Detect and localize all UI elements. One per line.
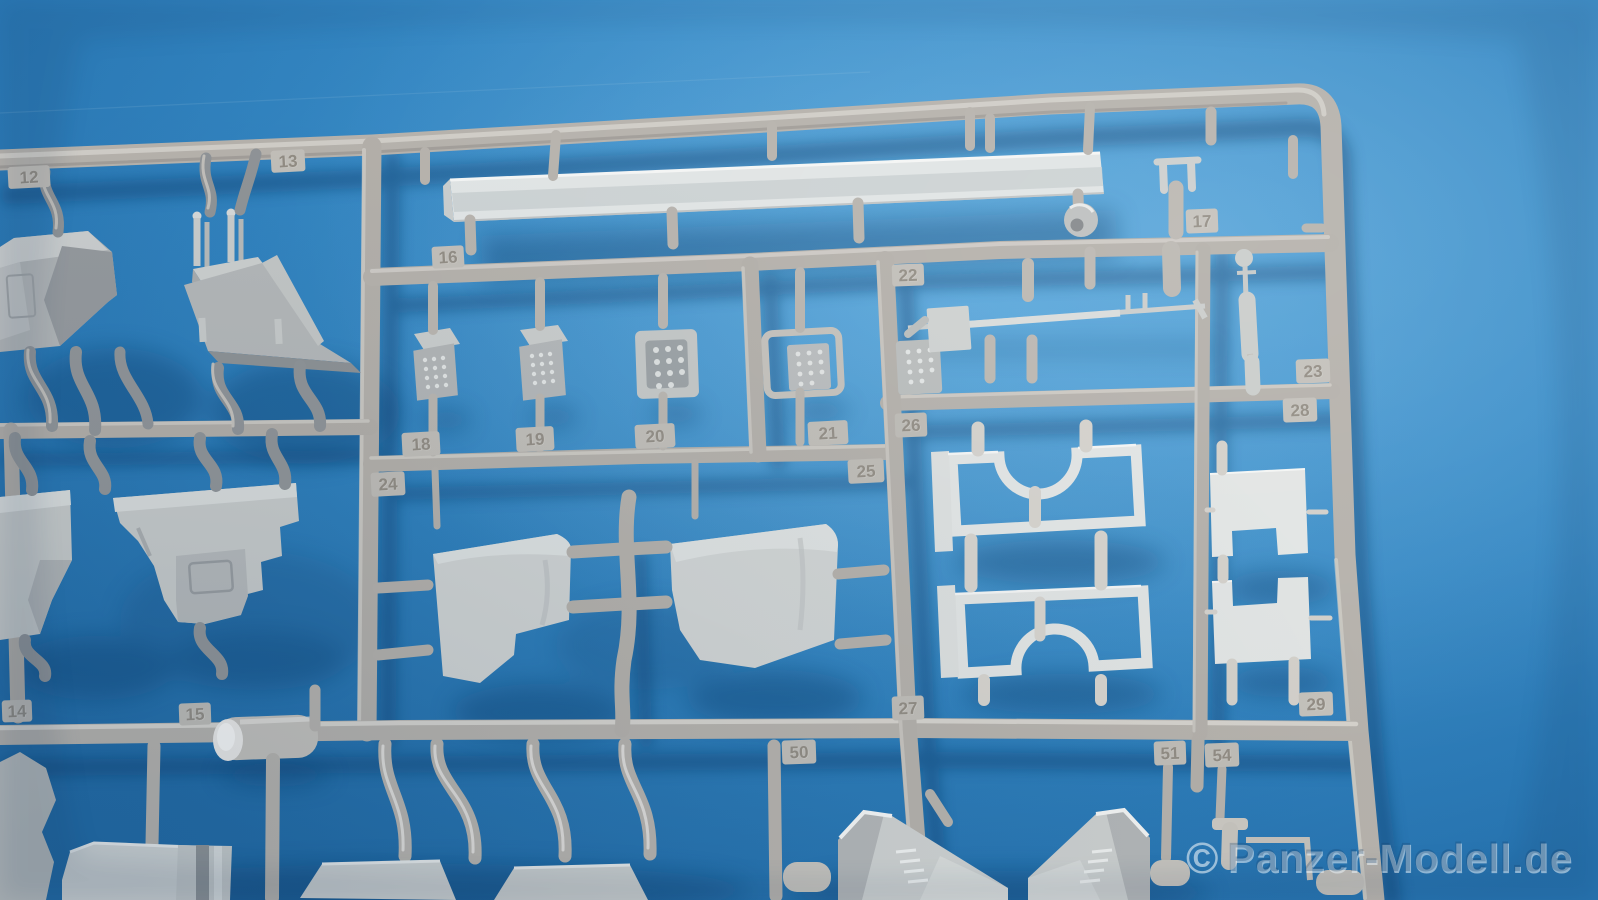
svg-text:©: © [1186, 834, 1219, 883]
svg-text:Panzer-Modell.de: Panzer-Modell.de [1227, 834, 1572, 880]
